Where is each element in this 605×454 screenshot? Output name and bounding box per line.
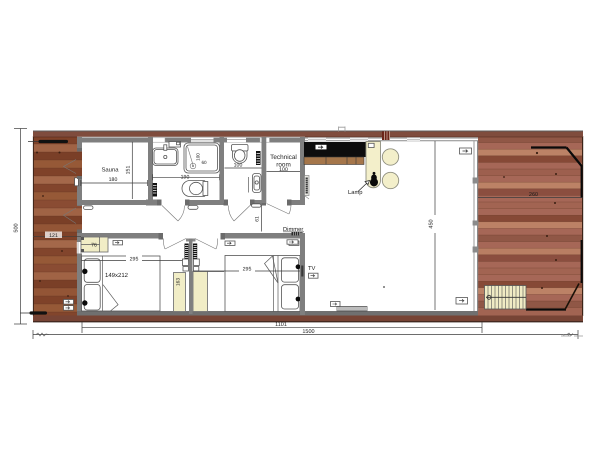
svg-text:500: 500	[14, 223, 20, 232]
svg-text:149x212: 149x212	[105, 272, 129, 279]
svg-text:Technical: Technical	[270, 154, 297, 161]
svg-text:100: 100	[234, 163, 243, 169]
svg-text:Sauna: Sauna	[101, 167, 119, 174]
svg-text:163: 163	[176, 278, 182, 286]
svg-text:260: 260	[529, 192, 538, 198]
svg-text:450: 450	[429, 219, 435, 228]
svg-text:151: 151	[126, 166, 132, 175]
svg-text:100: 100	[196, 153, 201, 161]
svg-text:295: 295	[130, 256, 139, 262]
svg-text:1500: 1500	[302, 329, 314, 335]
svg-text:121: 121	[49, 233, 58, 239]
svg-text:Lamp: Lamp	[348, 190, 363, 196]
svg-text:TV: TV	[308, 266, 316, 272]
svg-text:60: 60	[201, 160, 207, 165]
svg-text:100: 100	[279, 167, 288, 173]
svg-text:61: 61	[255, 216, 261, 222]
svg-text:76: 76	[91, 243, 97, 249]
svg-text:295: 295	[243, 267, 252, 273]
svg-text:180: 180	[109, 177, 118, 183]
svg-text:1101: 1101	[275, 322, 287, 328]
